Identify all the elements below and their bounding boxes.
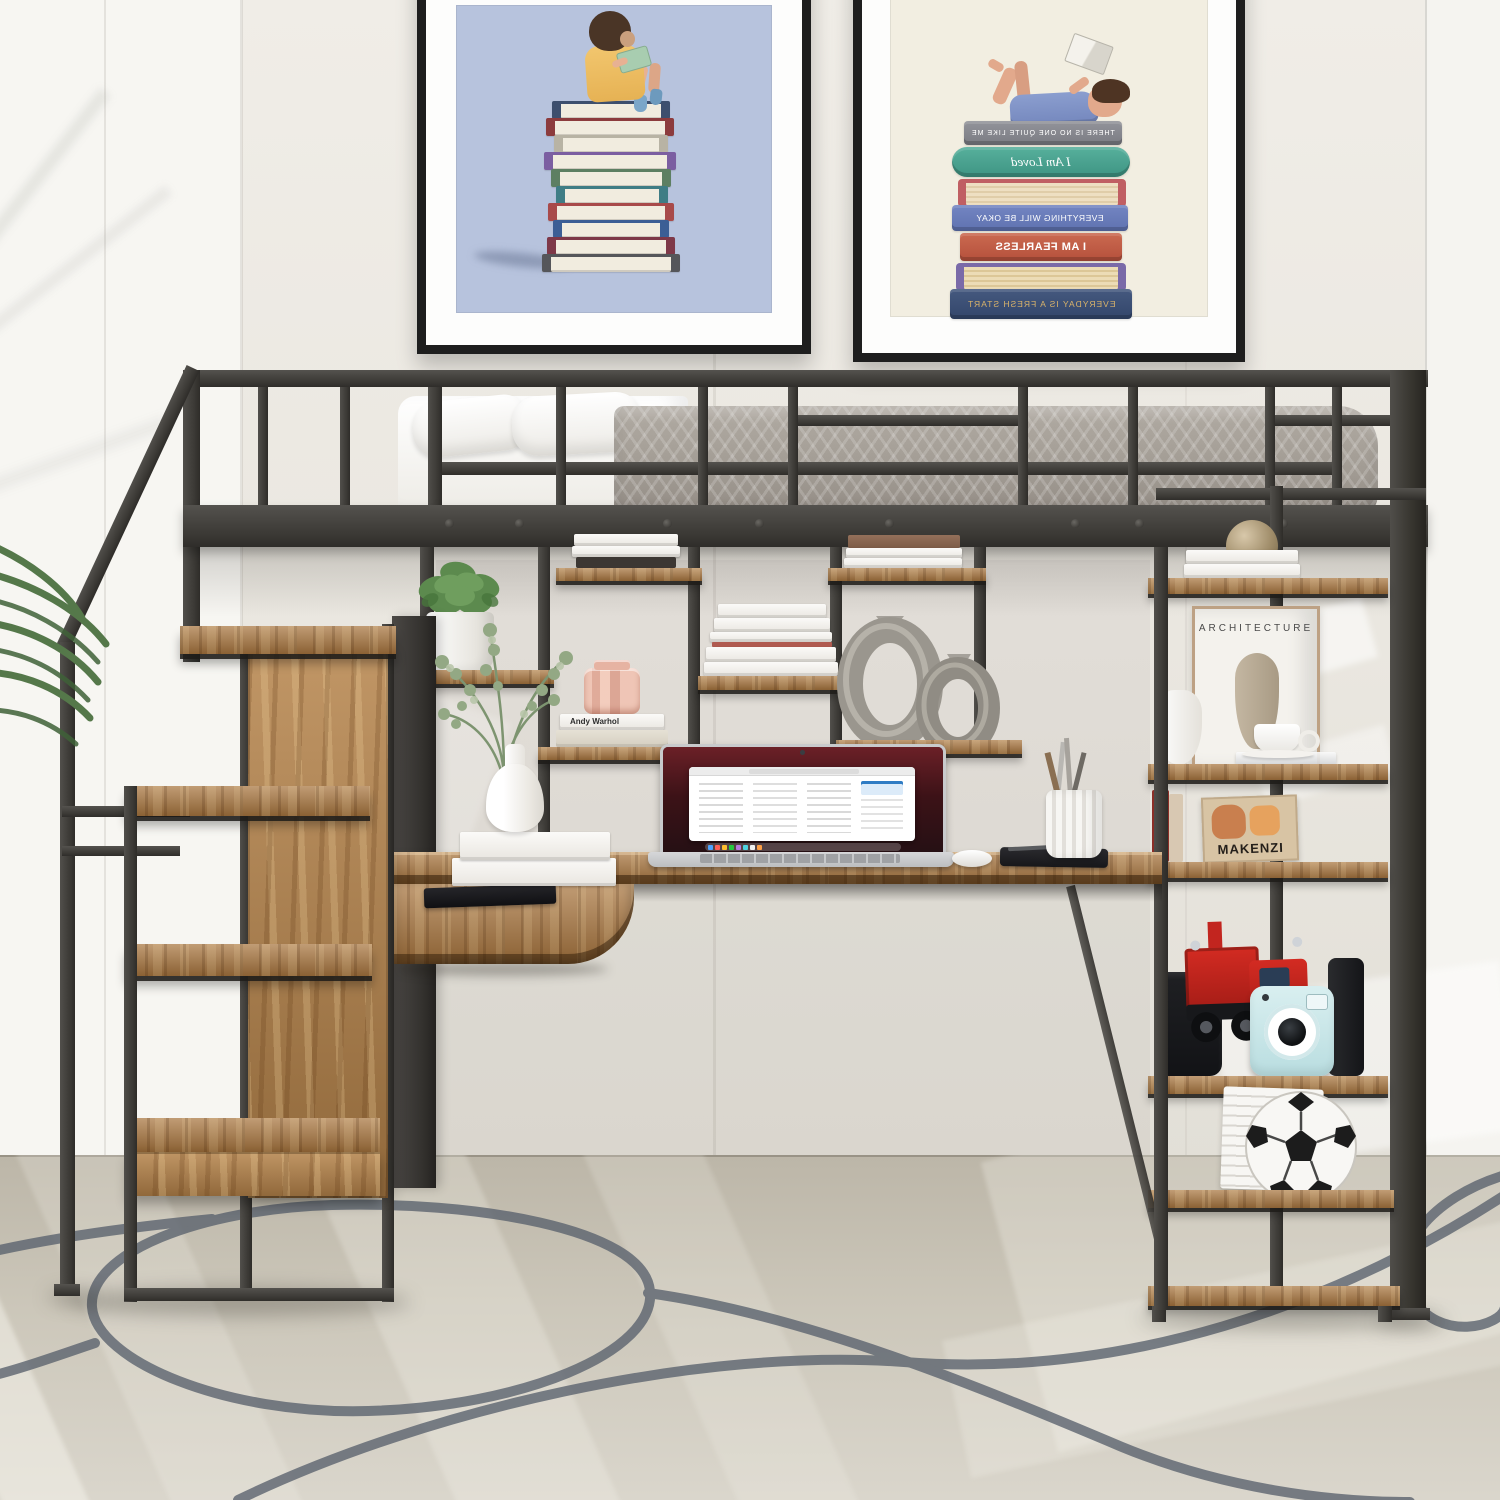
art-book [542, 254, 680, 272]
guardrail-upper [788, 415, 1024, 426]
book [718, 604, 826, 618]
soccer-ball [1244, 1090, 1358, 1204]
stair-tread [128, 1118, 380, 1152]
art-book-titled: I AM FEARLESS [960, 233, 1122, 261]
dock-icon [708, 845, 713, 850]
art-book-titled: THERE IS NO ONE QUITE LIKE ME [964, 121, 1122, 145]
dock-icon [750, 845, 755, 850]
headboard-slat [258, 387, 268, 517]
eucalyptus-stems [404, 578, 604, 778]
browser-text-column [699, 783, 743, 833]
guardrail-bar [428, 387, 442, 507]
instant-camera [1250, 986, 1334, 1076]
laptop-dock [705, 843, 901, 851]
stair-front-leg [124, 786, 137, 1302]
shelf-top-rail [1156, 488, 1426, 500]
art-child-on-books [456, 5, 772, 313]
screw-head [755, 519, 764, 528]
desk-return-shadow [398, 962, 608, 976]
book [1186, 550, 1298, 564]
book-spine [1169, 794, 1183, 862]
browser-text-column [753, 783, 797, 833]
laptop-keyboard [700, 854, 900, 863]
framed-print-right: THERE IS NO ONE QUITE LIKE ME I Am Loved… [853, 0, 1245, 362]
dock-icon [743, 845, 748, 850]
art-book-pages [956, 263, 1126, 291]
art-book-titled: EVERYTHING WILL BE OKAY [952, 205, 1128, 231]
art-boy-hair [1092, 79, 1130, 103]
large-book [460, 832, 610, 860]
bedroom-scene: THERE IS NO ONE QUITE LIKE ME I Am Loved… [0, 0, 1500, 1500]
book-title: THERE IS NO ONE QUITE LIKE ME [971, 130, 1115, 137]
framed-print-left [417, 0, 811, 354]
large-book [452, 858, 616, 886]
book [710, 632, 832, 642]
camera-lens [1278, 1018, 1306, 1046]
art-book [546, 118, 674, 136]
toy-truck-light [1292, 937, 1302, 947]
book [572, 546, 680, 557]
guardrail-bar [788, 387, 798, 507]
stair-tread-riser [128, 1152, 380, 1196]
shelf-board [1148, 1190, 1394, 1208]
magazine-figure [1249, 805, 1280, 836]
art-book [551, 169, 671, 187]
computer-mouse [952, 850, 992, 867]
stair-tread [180, 626, 396, 654]
book [1184, 564, 1300, 578]
book [576, 557, 676, 568]
art-book [554, 135, 668, 153]
book-title: I AM FEARLESS [995, 241, 1086, 253]
art-book [544, 152, 676, 170]
book [574, 534, 678, 546]
stair-tread [126, 786, 370, 816]
stair-bottom-bar [124, 1288, 394, 1301]
book [844, 558, 962, 568]
magazine-title-text: MAKENZI [1217, 840, 1284, 857]
guardrail-upper [1265, 415, 1390, 426]
teacup [1254, 724, 1300, 752]
camera-viewfinder [1262, 994, 1269, 1001]
stair-foot [54, 1284, 80, 1296]
stair-storage-panel [248, 652, 388, 1198]
browser-window [689, 767, 915, 841]
art-book [547, 237, 675, 255]
dock-icon [715, 845, 720, 850]
white-vase-body [486, 764, 544, 832]
stair-rail-bar [62, 846, 180, 856]
shelf-board [828, 568, 986, 581]
screw-head [445, 519, 454, 528]
browser-highlight-card [861, 781, 903, 795]
book-title: I Am Loved [1011, 154, 1071, 170]
screw-head [1071, 519, 1080, 528]
book [848, 535, 960, 548]
dock-icon [736, 845, 741, 850]
bed-post-right [1390, 370, 1426, 1318]
book [706, 647, 836, 662]
architecture-text: ARCHITECTURE [1199, 623, 1313, 634]
teacup-handle [1298, 730, 1320, 752]
book-title: EVERYTHING WILL BE OKAY [976, 213, 1104, 223]
shelf-board [1148, 764, 1388, 780]
dock-icon [757, 845, 762, 850]
screw-head [885, 519, 894, 528]
shelf-post-front [1154, 547, 1168, 1310]
browser-text-column [861, 799, 903, 829]
browser-urlbar [749, 769, 859, 774]
laptop-base [648, 852, 954, 867]
guardrail-bar [556, 387, 566, 507]
laptop-screen [660, 744, 946, 860]
magazine-figure [1211, 804, 1246, 839]
screw-head [1135, 519, 1144, 528]
guardrail-bar [1128, 387, 1138, 507]
pen-cup [1046, 790, 1102, 858]
toy-truck-wheel [1191, 1012, 1222, 1043]
architecture-title: ARCHITECTURE [1195, 623, 1317, 634]
saucer [1242, 750, 1314, 758]
book [704, 662, 838, 676]
laptop-webcam [800, 750, 805, 755]
art-book [548, 203, 674, 221]
bed-post-foot [1386, 1308, 1430, 1320]
makenzi-magazine: MAKENZI [1201, 794, 1299, 863]
browser-text-column [807, 783, 851, 833]
book [714, 618, 830, 632]
headboard-slat [340, 387, 350, 517]
palm-plant [0, 532, 164, 782]
magazine-title: MAKENZI [1202, 839, 1298, 857]
art-book-titled: EVERYDAY IS A FRESH START [950, 289, 1132, 319]
art-boy-book [1064, 33, 1114, 76]
art-book [553, 220, 669, 238]
ring-vases [836, 616, 1006, 742]
book [846, 548, 962, 558]
dock-icon [729, 845, 734, 850]
book-title: EVERYDAY IS A FRESH START [967, 299, 1115, 309]
guardrail-bar [1018, 387, 1028, 507]
shelf-board [698, 676, 844, 690]
shelf-foot [1378, 1306, 1392, 1322]
shelf-board [1148, 578, 1388, 594]
art-book [556, 186, 668, 204]
bed-top-rail [183, 370, 1428, 387]
art-child-face [620, 31, 635, 47]
art-boy-foot [987, 58, 1005, 74]
stair-tread [126, 944, 372, 976]
art-boy-on-books: THERE IS NO ONE QUITE LIKE ME I Am Loved… [890, 0, 1208, 317]
screw-head [663, 519, 672, 528]
guardrail-bar [698, 387, 708, 507]
camera-flash [1306, 994, 1328, 1010]
screw-head [515, 519, 524, 528]
dock-icon [722, 845, 727, 850]
art-book-titled: I Am Loved [952, 147, 1130, 177]
art-book-pages [958, 179, 1126, 207]
shelf-board-bottom [1148, 1286, 1400, 1306]
shelf-board [1148, 862, 1388, 878]
